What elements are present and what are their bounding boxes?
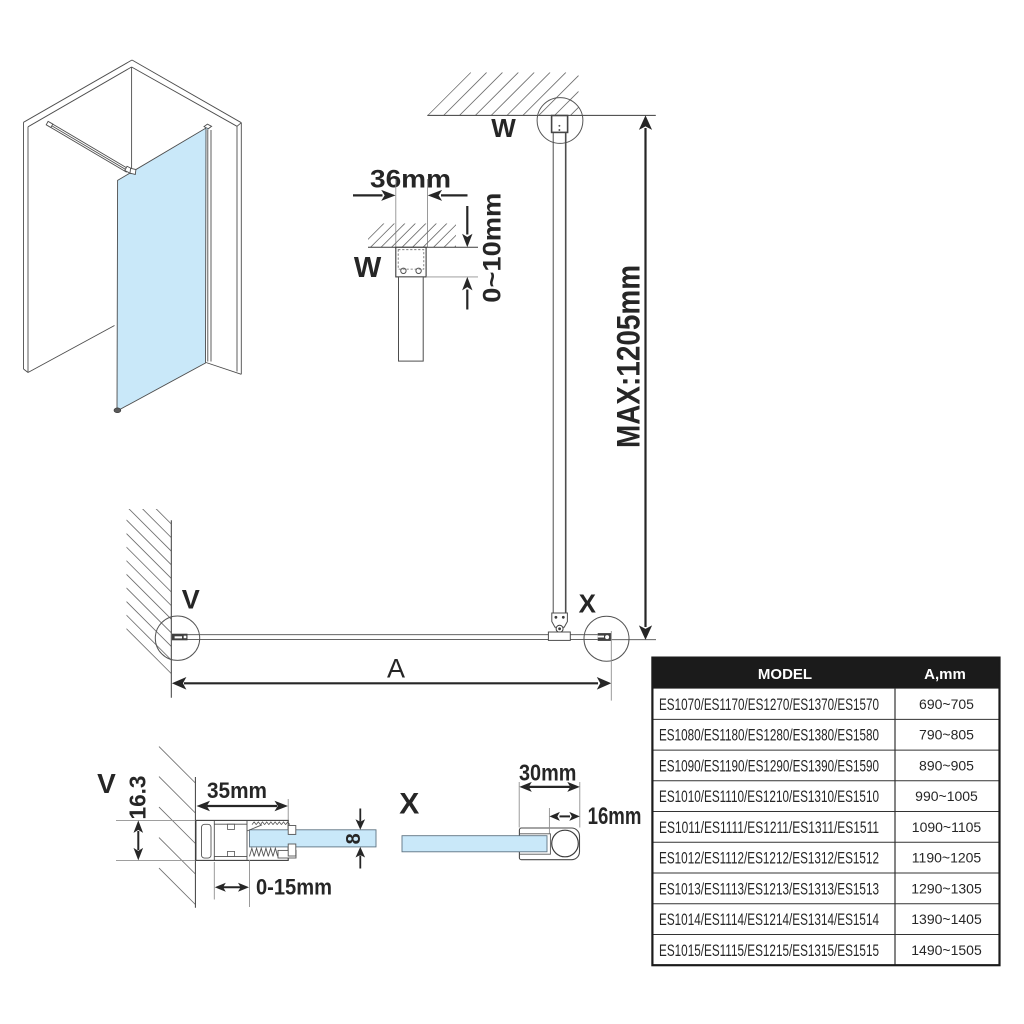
svg-text:V: V bbox=[182, 585, 200, 615]
svg-text:V: V bbox=[97, 768, 116, 799]
svg-text:8: 8 bbox=[343, 833, 365, 844]
svg-text:ES1014/ES1114/ES1214/ES1314/ES: ES1014/ES1114/ES1214/ES1314/ES1514 bbox=[659, 910, 879, 929]
svg-text:W: W bbox=[354, 252, 382, 284]
svg-text:W: W bbox=[491, 113, 516, 143]
svg-text:ES1070/ES1170/ES1270/ES1370/ES: ES1070/ES1170/ES1270/ES1370/ES1570 bbox=[659, 695, 879, 714]
svg-text:ES1010/ES1110/ES1210/ES1310/ES: ES1010/ES1110/ES1210/ES1310/ES1510 bbox=[659, 787, 879, 806]
svg-text:A,mm: A,mm bbox=[924, 666, 966, 683]
svg-text:A: A bbox=[387, 654, 405, 684]
svg-text:MODEL: MODEL bbox=[758, 666, 812, 683]
svg-text:1490~1505: 1490~1505 bbox=[911, 942, 982, 958]
svg-text:ES1080/ES1180/ES1280/ES1380/ES: ES1080/ES1180/ES1280/ES1380/ES1580 bbox=[659, 726, 879, 745]
svg-text:MAX:1205mm: MAX:1205mm bbox=[611, 265, 647, 448]
svg-text:0-15mm: 0-15mm bbox=[256, 874, 332, 899]
svg-text:16mm: 16mm bbox=[588, 803, 642, 830]
svg-text:X: X bbox=[399, 788, 419, 821]
svg-text:1390~1405: 1390~1405 bbox=[911, 911, 982, 927]
svg-text:1090~1105: 1090~1105 bbox=[912, 819, 982, 835]
svg-text:ES1090/ES1190/ES1290/ES1390/ES: ES1090/ES1190/ES1290/ES1390/ES1590 bbox=[659, 756, 879, 775]
svg-text:36mm: 36mm bbox=[370, 166, 451, 194]
svg-text:16.3: 16.3 bbox=[125, 776, 151, 820]
svg-text:690~705: 690~705 bbox=[919, 696, 974, 712]
svg-text:ES1012/ES1112/ES1212/ES1312/ES: ES1012/ES1112/ES1212/ES1312/ES1512 bbox=[659, 849, 879, 868]
svg-text:0~10mm: 0~10mm bbox=[479, 193, 507, 303]
svg-text:790~805: 790~805 bbox=[919, 727, 974, 743]
svg-text:1290~1305: 1290~1305 bbox=[911, 880, 982, 896]
svg-text:ES1013/ES1113/ES1213/ES1313/ES: ES1013/ES1113/ES1213/ES1313/ES1513 bbox=[659, 879, 879, 898]
svg-text:30mm: 30mm bbox=[519, 759, 576, 785]
svg-text:ES1011/ES1111/ES1211/ES1311/ES: ES1011/ES1111/ES1211/ES1311/ES1511 bbox=[659, 818, 879, 837]
svg-text:35mm: 35mm bbox=[207, 778, 267, 803]
svg-text:990~1005: 990~1005 bbox=[915, 788, 978, 804]
svg-text:ES1015/ES1115/ES1215/ES1315/ES: ES1015/ES1115/ES1215/ES1315/ES1515 bbox=[659, 941, 879, 960]
svg-text:X: X bbox=[579, 589, 597, 619]
svg-text:1190~1205: 1190~1205 bbox=[912, 850, 982, 866]
svg-text:890~905: 890~905 bbox=[919, 757, 974, 773]
